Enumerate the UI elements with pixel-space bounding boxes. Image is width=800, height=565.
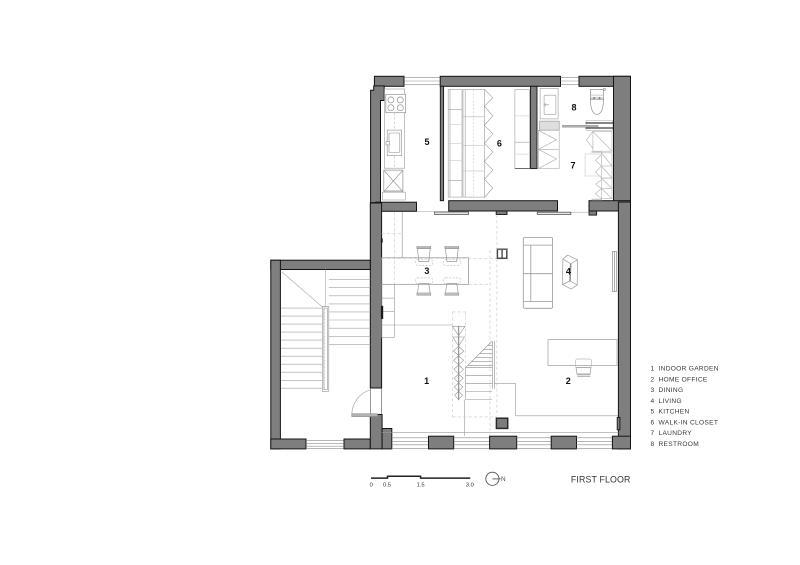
svg-text:0.5: 0.5: [383, 483, 391, 489]
svg-text:8: 8: [571, 103, 576, 113]
svg-text:2: 2: [651, 377, 655, 384]
svg-text:6: 6: [651, 420, 655, 427]
svg-text:FIRST FLOOR: FIRST FLOOR: [571, 475, 631, 485]
svg-text:7: 7: [651, 430, 655, 437]
svg-text:0: 0: [370, 483, 373, 489]
svg-text:1.5: 1.5: [417, 483, 425, 489]
svg-text:KITCHEN: KITCHEN: [659, 409, 690, 416]
svg-text:WALK-IN CLOSET: WALK-IN CLOSET: [659, 420, 719, 427]
svg-text:6: 6: [497, 139, 502, 149]
svg-text:RESTROOM: RESTROOM: [659, 441, 700, 448]
svg-text:8: 8: [651, 441, 655, 448]
svg-text:5: 5: [424, 137, 429, 147]
svg-text:5: 5: [651, 409, 655, 416]
svg-text:4: 4: [651, 398, 655, 405]
svg-text:N: N: [501, 476, 506, 483]
svg-text:LIVING: LIVING: [659, 398, 682, 405]
svg-text:1: 1: [424, 376, 429, 386]
svg-text:INDOOR GARDEN: INDOOR GARDEN: [659, 366, 719, 373]
svg-text:DINING: DINING: [659, 387, 684, 394]
svg-text:7: 7: [570, 161, 575, 171]
svg-text:3: 3: [651, 387, 655, 394]
svg-text:LAUNDRY: LAUNDRY: [659, 430, 693, 437]
svg-text:2: 2: [566, 376, 571, 386]
svg-text:3.0: 3.0: [466, 483, 474, 489]
svg-text:1: 1: [651, 366, 655, 373]
svg-text:3: 3: [424, 266, 429, 276]
svg-text:HOME OFFICE: HOME OFFICE: [659, 377, 708, 384]
svg-text:4: 4: [566, 267, 571, 277]
